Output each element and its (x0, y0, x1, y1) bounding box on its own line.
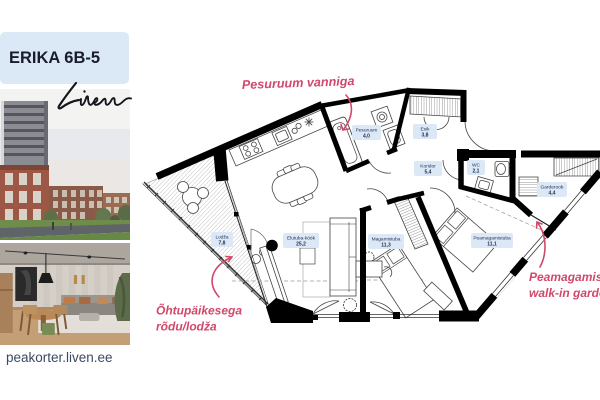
svg-text:5,4: 5,4 (425, 170, 432, 176)
svg-text:4,0: 4,0 (363, 134, 370, 140)
svg-text:11,3: 11,3 (381, 243, 391, 249)
svg-text:Õhtupäikesega: Õhtupäikesega (156, 303, 242, 318)
svg-text:Pesuruum vanniga: Pesuruum vanniga (242, 74, 355, 92)
svg-text:rõdu/lodža: rõdu/lodža (156, 320, 217, 334)
svg-text:11,1: 11,1 (487, 242, 497, 248)
svg-text:7,8: 7,8 (219, 241, 226, 247)
svg-text:2,1: 2,1 (473, 169, 480, 175)
svg-text:25,2: 25,2 (296, 242, 306, 248)
svg-text:walk-in garderoobiga: walk-in garderoobiga (529, 286, 600, 300)
svg-text:Peamagamistuba: Peamagamistuba (529, 270, 600, 284)
svg-text:4,4: 4,4 (549, 191, 556, 197)
svg-text:3,8: 3,8 (422, 133, 429, 139)
